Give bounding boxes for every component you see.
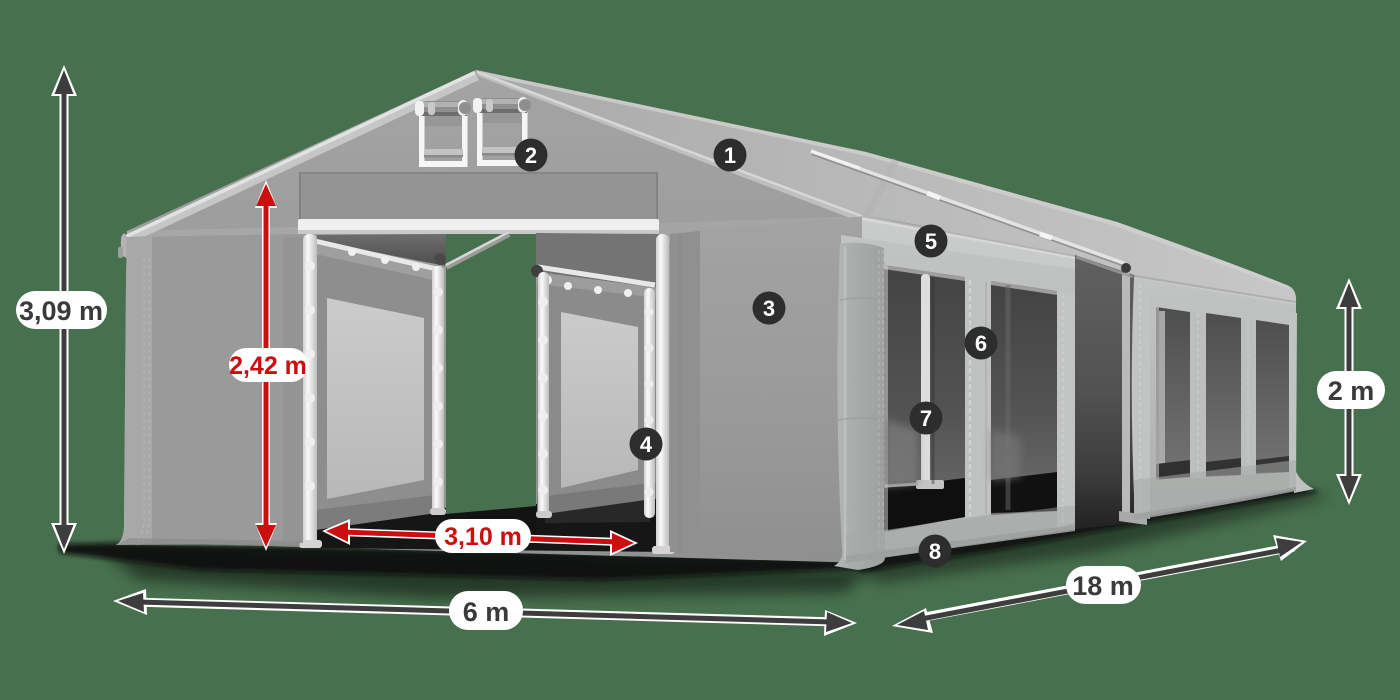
svg-text:7: 7 [920,406,932,431]
svg-text:2 m: 2 m [1328,376,1375,406]
svg-text:18 m: 18 m [1072,571,1134,601]
svg-text:1: 1 [724,143,736,168]
svg-text:3,10 m: 3,10 m [444,523,522,551]
svg-text:4: 4 [640,432,653,457]
svg-text:5: 5 [925,229,937,254]
svg-text:8: 8 [929,539,941,564]
svg-text:2,42 m: 2,42 m [229,352,307,380]
svg-text:3: 3 [763,296,775,321]
svg-text:6 m: 6 m [463,597,510,627]
svg-text:2: 2 [525,143,537,168]
svg-text:3,09 m: 3,09 m [19,296,103,326]
svg-text:6: 6 [975,331,987,356]
